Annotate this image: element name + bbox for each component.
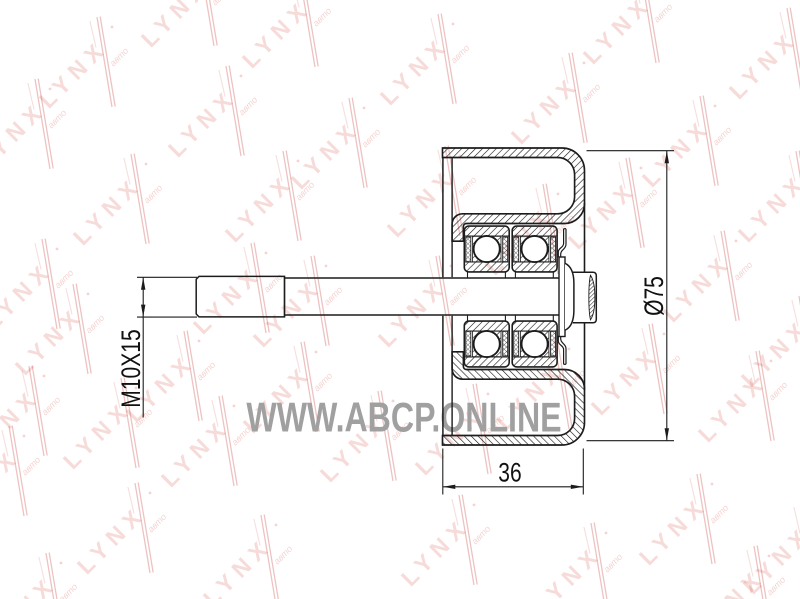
svg-text:Ø75: Ø75 [639,276,669,316]
svg-text:36: 36 [498,458,521,488]
svg-text:WWW.ABCP.ONLINE: WWW.ABCP.ONLINE [246,393,561,440]
svg-text:M10X15: M10X15 [117,329,147,407]
